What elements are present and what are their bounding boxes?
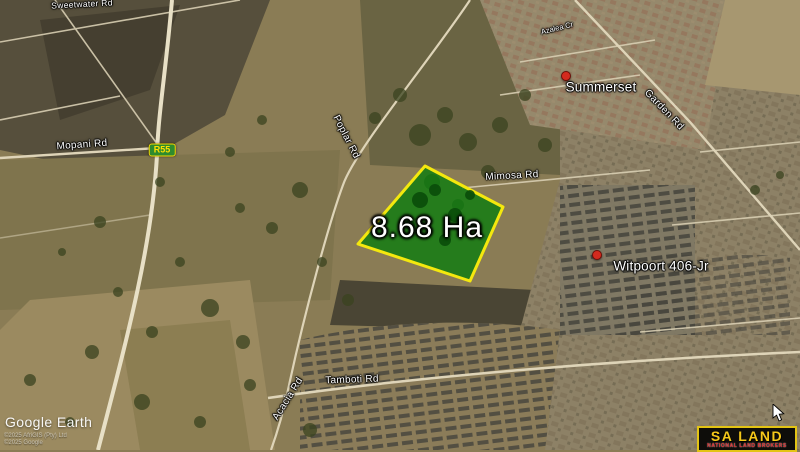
google-earth-watermark: Google Earth — [5, 414, 92, 430]
place-label-summerset: Summerset — [566, 80, 637, 95]
witpoort-marker-icon[interactable] — [592, 250, 602, 260]
copyright-line-1: ©2025 AfriGIS (Pty) Ltd — [4, 433, 67, 440]
map-canvas[interactable]: Sweetwater Rd Mopani Rd R55 Poplar Rd Mi… — [0, 0, 800, 450]
sa-land-logo-subtitle: NATIONAL LAND BROKERS — [699, 443, 795, 449]
map-screenshot: { "map": { "area_overlay": { "label": "8… — [0, 0, 800, 450]
place-label-witpoort: Witpoort 406-Jr — [613, 259, 708, 274]
parcel-area-label: 8.68 Ha — [371, 211, 483, 245]
sa-land-logo: SA LAND NATIONAL LAND BROKERS — [697, 426, 797, 452]
copyright-line-2: ©2025 Google — [4, 440, 67, 447]
copyright-text: ©2025 AfriGIS (Pty) Ltd ©2025 Google — [4, 433, 67, 447]
road-label-tamboti: Tamboti Rd — [325, 374, 379, 387]
mouse-cursor-icon — [772, 404, 788, 422]
sa-land-logo-title: SA LAND — [699, 429, 795, 443]
route-shield-r55: R55 — [149, 144, 176, 157]
